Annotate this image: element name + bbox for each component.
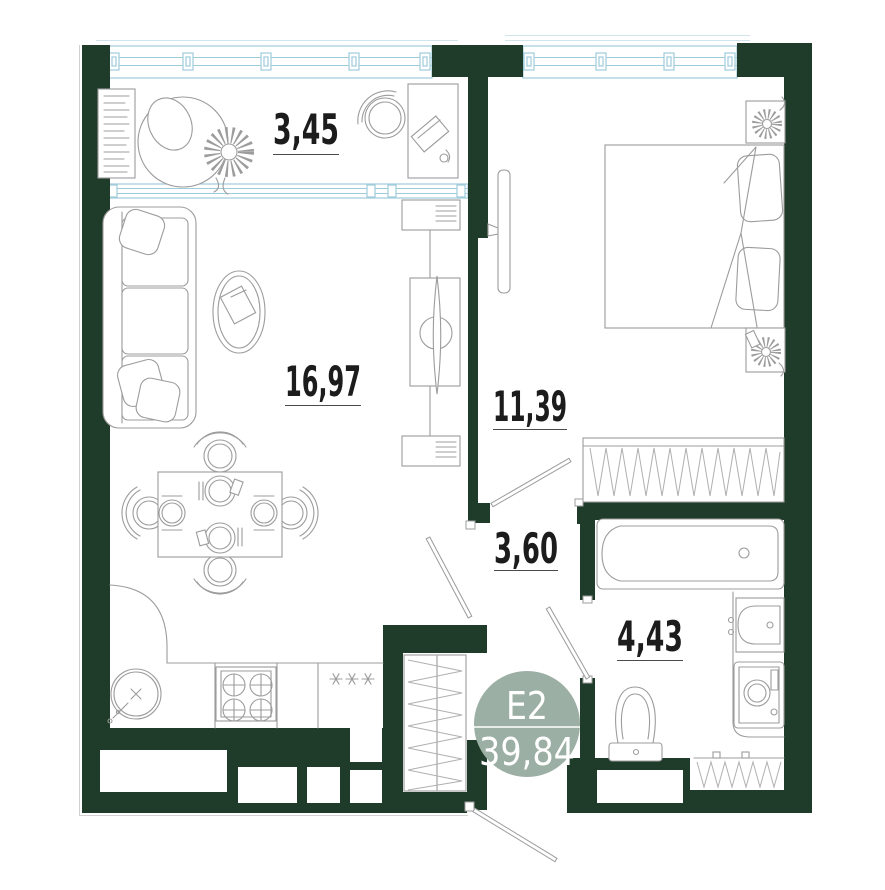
washing-machine — [734, 662, 784, 728]
wall-bedroom-bathroom — [583, 502, 784, 520]
throw-pillow — [134, 376, 181, 423]
living-area-label: 16,97 — [285, 357, 361, 406]
unit-total-area: 39,84 — [479, 730, 575, 774]
bedroom-window — [523, 46, 737, 78]
loggia-window — [108, 46, 432, 78]
pillow — [735, 247, 780, 311]
wall-top-center — [432, 45, 523, 77]
coffee-table — [213, 271, 265, 353]
loggia-divider-window — [108, 184, 468, 198]
wall-bottom-right — [690, 790, 784, 813]
hall-closet — [404, 655, 466, 791]
wall-end-block — [468, 503, 490, 523]
wall-bedroom-left-upper — [468, 77, 488, 238]
bookshelf — [98, 89, 135, 178]
nightstand-top — [746, 97, 785, 143]
pillow — [737, 154, 784, 223]
unit-badge: E2 39,84 — [474, 671, 580, 777]
hallway-area-label: 3,60 — [494, 524, 558, 573]
wall-closet-top — [383, 625, 487, 653]
wall-below-closet — [403, 792, 467, 813]
wall-bathroom-left-upper — [580, 502, 595, 600]
wardrobe — [583, 438, 784, 502]
wall-closet-left — [383, 653, 403, 728]
bedroom-area-label: 11,39 — [493, 382, 567, 431]
sofa — [103, 207, 196, 428]
nightstand-bottom — [745, 328, 785, 376]
floor-plan: 3,45 16,97 11,39 3,60 4,43 E2 39,84 — [0, 0, 885, 890]
wall-right — [784, 43, 812, 813]
stove — [216, 667, 276, 721]
bathroom-area-label: 4,43 — [617, 612, 683, 661]
unit-label: E2 — [506, 684, 548, 728]
bathtub — [597, 519, 784, 589]
wall-bedroom-left-lower — [468, 238, 478, 505]
desk — [408, 84, 458, 178]
floor-plan-drawing: 3,45 16,97 11,39 3,60 4,43 E2 39,84 — [0, 0, 885, 890]
bed — [605, 145, 784, 328]
bathroom-sink — [729, 598, 785, 652]
loggia-area-label: 3,45 — [273, 105, 339, 154]
